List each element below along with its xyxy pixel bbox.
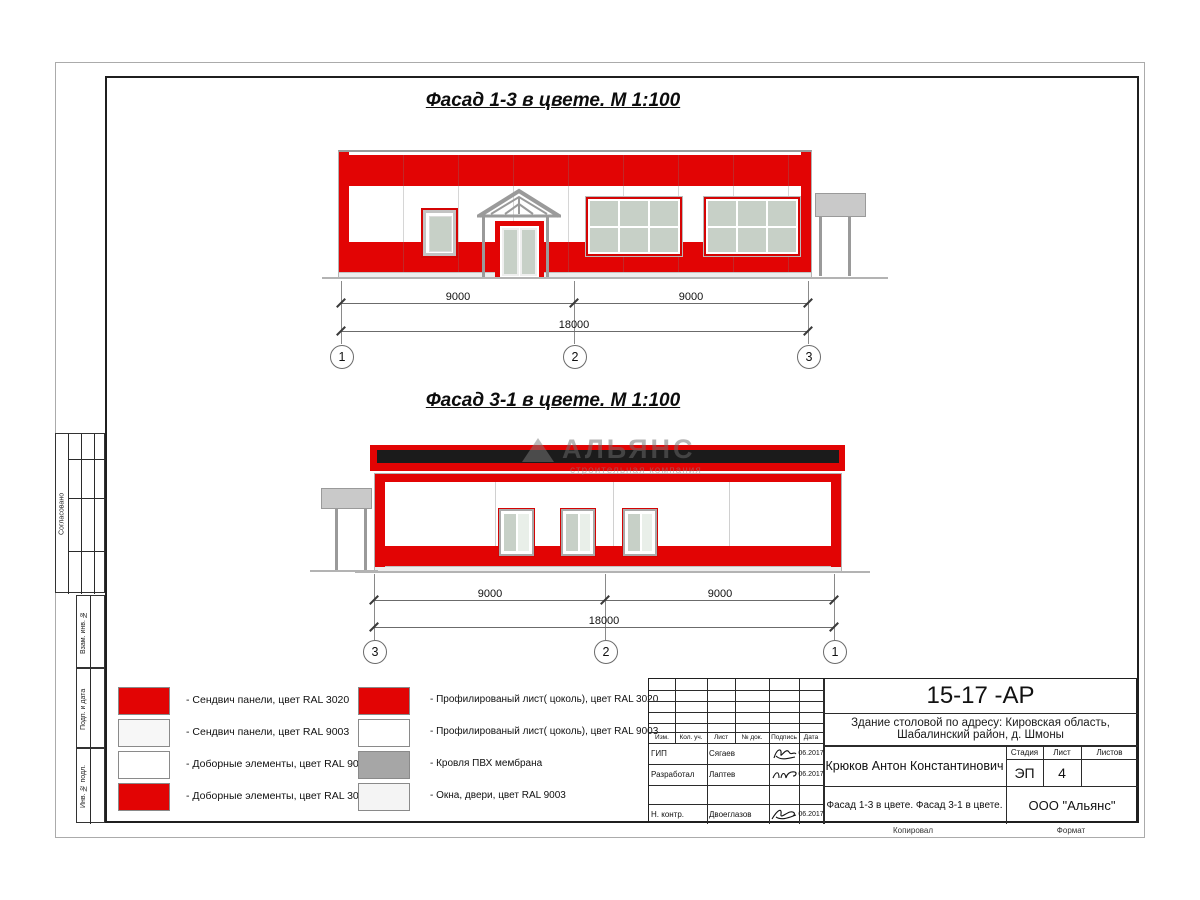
- window-pane: [650, 201, 678, 226]
- window-pane: [708, 201, 736, 226]
- approval-grid: Согласовано: [55, 433, 105, 593]
- small-window-2: [561, 509, 595, 556]
- role-gip: ГИП: [651, 743, 705, 764]
- dim-18000: 18000: [559, 319, 590, 331]
- right-canopy: [815, 193, 866, 217]
- stage-value: ЭП: [1006, 759, 1043, 786]
- stamp-vzam-label: Взам. инв. №: [77, 596, 90, 669]
- dim-9000-left: 9000: [478, 588, 502, 600]
- door-frame: [500, 226, 539, 278]
- panel-joint: [495, 482, 496, 546]
- window-pane: [620, 201, 648, 226]
- bottom-red-band: [375, 546, 841, 567]
- canopy-post: [335, 509, 338, 570]
- agreed-label: Согласовано: [56, 434, 68, 594]
- legend-label: - Сендвич панели, цвет RAL 3020: [186, 694, 349, 706]
- legend-swatch: [358, 687, 410, 715]
- project-line1: Здание столовой по адресу: Кировская обл…: [851, 717, 1110, 729]
- legend-label: - Профилированый лист( цоколь), цвет RAL…: [430, 726, 658, 737]
- window-pane: [738, 201, 766, 226]
- sheet-label: Лист: [1043, 745, 1081, 759]
- title-block: Изм. Кол. уч. Лист № док. Подпись Дата Г…: [648, 678, 1137, 823]
- left-corner-strip: [375, 474, 385, 567]
- sheet-value: 4: [1043, 759, 1081, 786]
- window-pane: [580, 514, 590, 551]
- chief-name: Крюков Антон Константинович: [823, 745, 1006, 786]
- role-razrabotal: Разработал: [651, 764, 705, 785]
- left-corner-strip: [339, 152, 349, 272]
- window-pane: [518, 514, 529, 551]
- axis-circle-3: 3: [797, 345, 821, 369]
- legend-label: - Доборные элементы, цвет RAL 9003: [186, 758, 370, 770]
- date-nkontr: 06.2017: [799, 804, 823, 824]
- stamp-inv-label: Инв. № подл.: [77, 749, 90, 824]
- date-razrabotal: 06.2017: [799, 764, 823, 785]
- col-ndok: № док.: [735, 732, 769, 743]
- copied-label: Копировал: [893, 826, 933, 835]
- canopy-post: [364, 509, 367, 570]
- legend-swatch: [118, 719, 170, 747]
- legend-swatch: [358, 783, 410, 811]
- stamp-box-vzam: Взам. инв. №: [76, 595, 105, 668]
- signature-gip-icon: [771, 745, 798, 762]
- col-izm: Изм.: [649, 732, 675, 743]
- dimension-line-total: [374, 627, 834, 628]
- extension-line: [374, 574, 375, 640]
- entrance-portal: [495, 221, 544, 278]
- canopy-post: [819, 217, 822, 276]
- window-pane: [628, 514, 640, 551]
- legend-label: - Доборные элементы, цвет RAL 3020: [186, 790, 370, 802]
- panel-joint: [729, 482, 730, 546]
- dimension-line-total: [341, 331, 808, 332]
- axis-circle-2: 2: [563, 345, 587, 369]
- company-name: ООО "Альянс": [1006, 786, 1138, 824]
- porch-post-left: [482, 216, 485, 278]
- big-window-2: [704, 197, 800, 256]
- name-laptev: Лаптев: [709, 764, 767, 785]
- right-corner-strip: [801, 152, 811, 272]
- window-pane: [590, 201, 618, 226]
- legend-label: - Кровля ПВХ мембрана: [430, 758, 542, 769]
- door-leaf-left: [502, 228, 519, 276]
- signature-razrabotal-icon: [771, 766, 798, 783]
- col-koluch: Кол. уч.: [675, 732, 707, 743]
- axis-circle-1: 1: [823, 640, 847, 664]
- sheets-label: Листов: [1081, 745, 1138, 759]
- facade-1-3-title: Фасад 1-3 в цвете. М 1:100: [426, 90, 680, 112]
- window-pane: [620, 228, 648, 253]
- legend-label: - Профилированый лист( цоколь), цвет RAL…: [430, 694, 658, 705]
- facade-3-1-building: [374, 473, 842, 572]
- axis-circle-3: 3: [363, 640, 387, 664]
- company-watermark: АЛЬЯНС строительная компания: [522, 438, 842, 480]
- left-canopy: [321, 488, 372, 509]
- window-glass: [429, 216, 452, 252]
- format-label: Формат: [1057, 826, 1085, 835]
- window-pane: [768, 201, 796, 226]
- signature-nkontr-icon: [770, 805, 798, 823]
- name-syagaev: Сягаев: [709, 743, 767, 764]
- window-pane: [642, 514, 652, 551]
- drawing-sheet: Согласовано Взам. инв. № Подп. и дата Ин…: [0, 0, 1200, 900]
- extension-line: [605, 574, 606, 640]
- stamp-podp-label: Подп. и дата: [77, 669, 90, 749]
- small-window-1: [499, 509, 534, 556]
- small-window: [423, 210, 456, 256]
- doc-number: 15-17 -АР: [823, 679, 1138, 713]
- project-line2: Шабалинский район, д. Шмоны: [897, 729, 1064, 741]
- window-pane: [650, 228, 678, 253]
- dim-9000-right: 9000: [708, 588, 732, 600]
- sheet-title: Фасад 1-3 в цвете. Фасад 3-1 в цвете.: [825, 786, 1004, 824]
- axis-circle-1: 1: [330, 345, 354, 369]
- col-list: Лист: [707, 732, 735, 743]
- extension-line: [808, 281, 809, 344]
- col-data: Дата: [799, 732, 823, 743]
- legend-swatch: [118, 751, 170, 779]
- legend-swatch: [358, 751, 410, 779]
- window-pane: [566, 514, 578, 551]
- role-nkontr: Н. контр.: [651, 804, 705, 824]
- axis-circle-2: 2: [594, 640, 618, 664]
- alliance-logo-icon: [522, 438, 554, 462]
- parapet-cap-left: [370, 450, 377, 463]
- dim-9000-left: 9000: [446, 291, 470, 303]
- col-podpis: Подпись: [769, 732, 799, 743]
- facade-3-1-title: Фасад 3-1 в цвете. М 1:100: [426, 390, 680, 412]
- window-pane: [768, 228, 796, 253]
- stage-label: Стадия: [1006, 745, 1043, 759]
- porch-post-right: [546, 216, 549, 278]
- right-corner-strip: [831, 474, 841, 567]
- dim-18000: 18000: [589, 615, 620, 627]
- stamp-box-inv: Инв. № подл.: [76, 748, 105, 823]
- door-leaf-right: [520, 228, 537, 276]
- dim-9000-right: 9000: [679, 291, 703, 303]
- entrance-gable-icon: [477, 186, 561, 218]
- window-pane: [708, 228, 736, 253]
- big-window-1: [586, 197, 682, 256]
- ground-line: [322, 277, 888, 279]
- watermark-tagline: строительная компания: [570, 465, 702, 476]
- project-name: Здание столовой по адресу: Кировская обл…: [823, 713, 1138, 745]
- ground-line: [355, 571, 870, 573]
- name-dvoeglazov: Двоеглазов: [709, 804, 767, 824]
- legend-swatch: [358, 719, 410, 747]
- small-window-3: [623, 509, 657, 556]
- legend-swatch: [118, 687, 170, 715]
- window-pane: [590, 228, 618, 253]
- window-pane: [738, 228, 766, 253]
- window-pane: [504, 514, 516, 551]
- legend-label: - Сендвич панели, цвет RAL 9003: [186, 726, 349, 738]
- extension-line: [341, 281, 342, 344]
- legend-swatch: [118, 783, 170, 811]
- extension-line: [574, 281, 575, 344]
- sheets-value: [1081, 759, 1138, 786]
- panel-joint: [613, 482, 614, 546]
- canopy-post: [848, 217, 851, 276]
- extension-line: [834, 574, 835, 640]
- stamp-box-podp: Подп. и дата: [76, 668, 105, 748]
- legend-label: - Окна, двери, цвет RAL 9003: [430, 790, 566, 801]
- watermark-name: АЛЬЯНС: [562, 434, 696, 465]
- date-gip: 06.2017: [799, 743, 823, 764]
